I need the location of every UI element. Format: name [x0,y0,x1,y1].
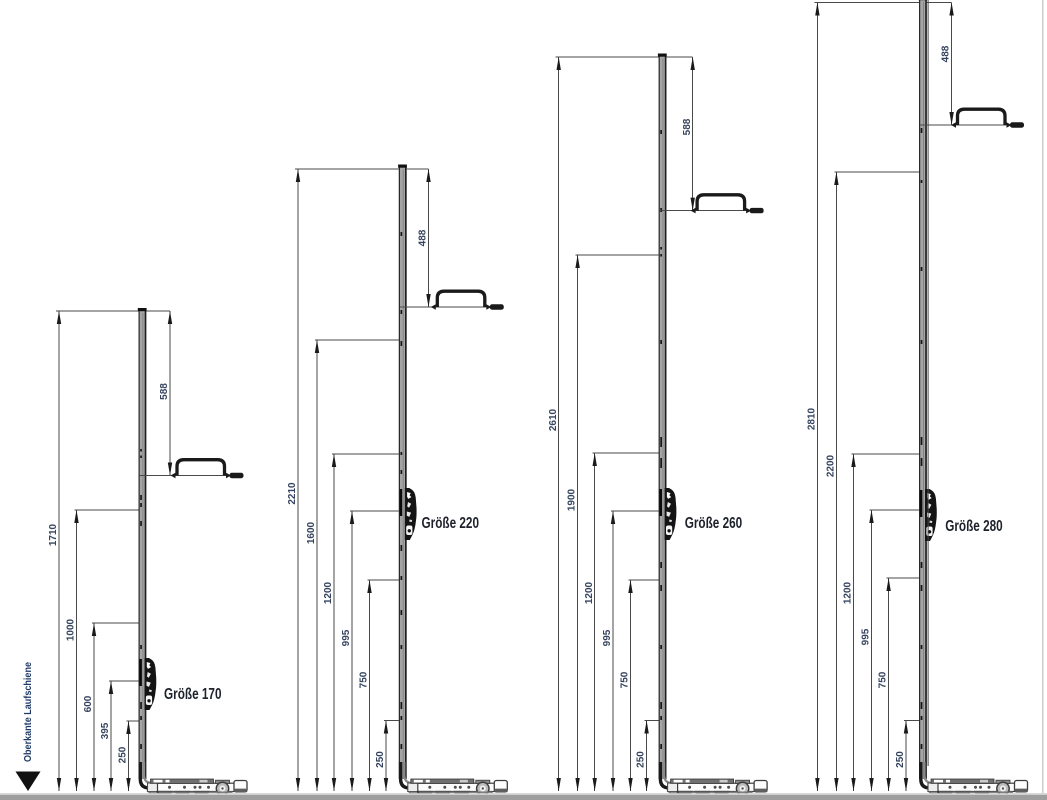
svg-text:Größe 260: Größe 260 [685,515,743,532]
svg-text:1000: 1000 [66,618,77,641]
svg-text:250: 250 [375,751,386,768]
svg-text:Größe 280: Größe 280 [945,518,1003,535]
svg-text:2200: 2200 [826,454,837,477]
svg-text:600: 600 [83,695,94,712]
svg-text:395: 395 [100,722,111,739]
svg-text:Größe 220: Größe 220 [422,515,480,532]
svg-text:488: 488 [418,229,429,246]
svg-text:588: 588 [682,118,693,135]
svg-text:1200: 1200 [584,581,595,604]
svg-text:588: 588 [159,383,170,400]
svg-text:1200: 1200 [843,581,854,604]
svg-text:1600: 1600 [306,521,317,544]
svg-text:488: 488 [941,45,952,62]
svg-text:Oberkante Laufschiene: Oberkante Laufschiene [22,662,34,762]
svg-text:750: 750 [878,671,889,688]
svg-text:250: 250 [895,751,906,768]
svg-text:Größe 170: Größe 170 [164,686,222,703]
svg-text:1900: 1900 [567,488,578,511]
svg-text:250: 250 [636,751,647,768]
svg-text:2210: 2210 [287,482,298,505]
svg-text:995: 995 [602,629,613,646]
svg-text:995: 995 [861,628,872,645]
svg-text:995: 995 [341,629,352,646]
svg-text:1710: 1710 [48,523,59,546]
svg-text:2810: 2810 [807,407,818,430]
svg-text:750: 750 [359,671,370,688]
svg-text:2610: 2610 [548,408,559,431]
svg-text:750: 750 [620,671,631,688]
svg-text:250: 250 [118,746,129,763]
svg-text:1200: 1200 [323,581,334,604]
